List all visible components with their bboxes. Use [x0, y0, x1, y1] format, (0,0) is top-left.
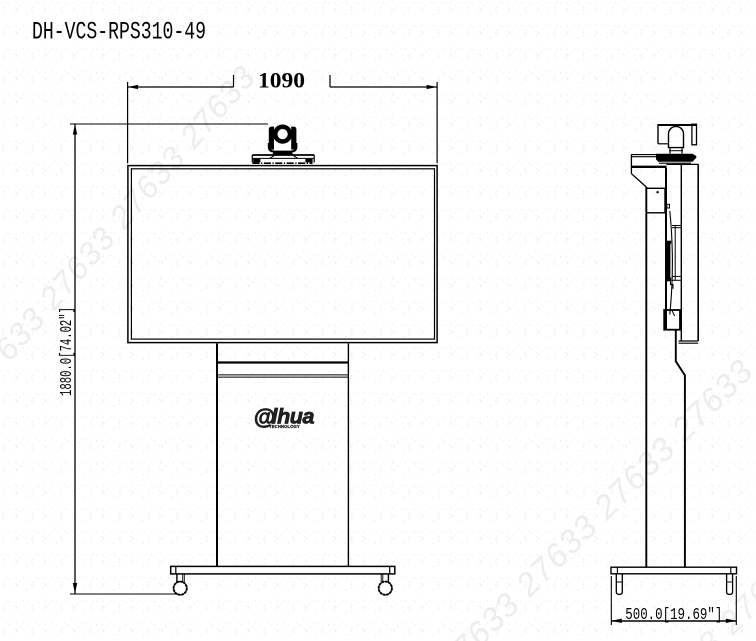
svg-text:TECHNOLOGY: TECHNOLOGY [269, 424, 300, 429]
svg-text:1880.0[74.02"]: 1880.0[74.02"] [58, 307, 77, 396]
svg-text:1090: 1090 [258, 68, 305, 93]
svg-text:500.0[19.69"]: 500.0[19.69"] [625, 606, 722, 625]
svg-text:DH-VCS-RPS310-49: DH-VCS-RPS310-49 [32, 18, 206, 47]
